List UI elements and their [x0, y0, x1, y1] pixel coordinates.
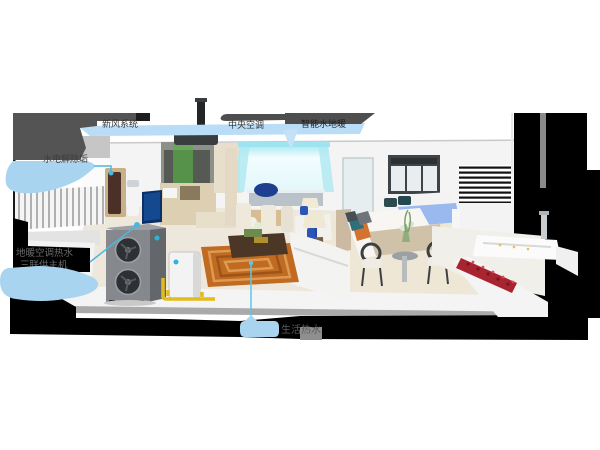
- svg-text:中央空调: 中央空调: [228, 119, 264, 130]
- svg-text:生活热水: 生活热水: [281, 323, 321, 336]
- svg-text:智能水地暖: 智能水地暖: [301, 118, 346, 129]
- svg-text:地暖空调热水: 地暖空调热水: [16, 247, 74, 259]
- svg-text:水电解除垢: 水电解除垢: [43, 153, 88, 164]
- svg-text:新风系统: 新风系统: [102, 118, 138, 129]
